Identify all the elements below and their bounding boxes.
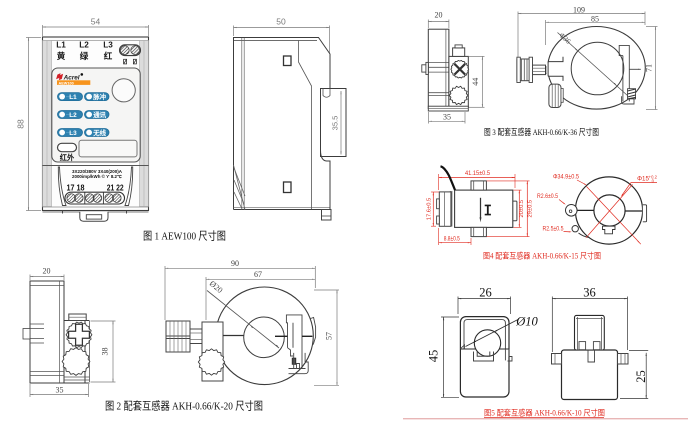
svg-text:图 3 配套互感器 AKH-0.66/K-36 尺寸图: 图 3 配套互感器 AKH-0.66/K-36 尺寸图 — [484, 126, 599, 137]
svg-text:85: 85 — [591, 14, 599, 23]
svg-text:绿: 绿 — [80, 51, 89, 61]
svg-text:35: 35 — [56, 386, 64, 395]
svg-text:无线: 无线 — [92, 128, 106, 137]
svg-text:脉冲: 脉冲 — [92, 92, 106, 101]
svg-text:Φ34.9±0.5: Φ34.9±0.5 — [553, 173, 579, 180]
svg-text:图4 配套互感器 AKH-0.66/K-15 尺寸图: 图4 配套互感器 AKH-0.66/K-15 尺寸图 — [483, 251, 601, 261]
svg-text:17 18: 17 18 — [67, 184, 85, 193]
svg-text:红外: 红外 — [60, 153, 75, 162]
svg-text:黄: 黄 — [57, 51, 66, 61]
svg-text:L1: L1 — [69, 94, 77, 101]
svg-text:21 22: 21 22 — [107, 184, 124, 193]
svg-text:L3: L3 — [103, 41, 113, 50]
svg-text:L3: L3 — [69, 130, 77, 137]
svg-text:红: 红 — [104, 51, 113, 61]
svg-text:20: 20 — [43, 267, 51, 276]
svg-text:17.6±0.5: 17.6±0.5 — [426, 198, 432, 221]
svg-text:2000imp/kWh © Ƴ 8.2℃: 2000imp/kWh © Ƴ 8.2℃ — [72, 174, 122, 179]
svg-text:36: 36 — [583, 286, 596, 300]
svg-text:29±0.5: 29±0.5 — [527, 200, 533, 218]
svg-text:109: 109 — [573, 6, 585, 15]
svg-text:35: 35 — [443, 112, 451, 121]
svg-text:38: 38 — [101, 348, 110, 356]
svg-text:图5 配套互感器 AKH-0.66/K-10 尺寸图: 图5 配套互感器 AKH-0.66/K-10 尺寸图 — [484, 408, 605, 418]
svg-text:25: 25 — [634, 370, 648, 383]
svg-text:通讯: 通讯 — [93, 110, 106, 119]
svg-text:50: 50 — [276, 17, 286, 27]
svg-text:图 2 配套互感器 AKH-0.66/K-20 尺寸图: 图 2 配套互感器 AKH-0.66/K-20 尺寸图 — [105, 399, 263, 413]
svg-text:20±0.5: 20±0.5 — [519, 200, 525, 218]
svg-text:54: 54 — [91, 17, 101, 27]
svg-text:Φ15: Φ15 — [637, 175, 649, 182]
svg-text:图 1 AEW100 尺寸图: 图 1 AEW100 尺寸图 — [143, 229, 226, 243]
svg-text:88: 88 — [16, 119, 26, 129]
svg-text:67: 67 — [254, 270, 262, 279]
svg-text:90: 90 — [231, 259, 239, 268]
svg-text:L2: L2 — [79, 41, 89, 50]
svg-text:R2.6±0.5: R2.6±0.5 — [537, 193, 558, 200]
svg-text:L2: L2 — [69, 112, 77, 119]
svg-text:26: 26 — [479, 286, 492, 300]
svg-text:44: 44 — [471, 78, 480, 86]
svg-text:57: 57 — [325, 332, 334, 340]
svg-text:R2.5±0.5: R2.5±0.5 — [543, 226, 564, 233]
svg-text:8.8±0.5: 8.8±0.5 — [444, 236, 461, 242]
svg-text:AEW100: AEW100 — [59, 81, 74, 85]
svg-text:Ø10: Ø10 — [515, 315, 538, 329]
svg-text:41.15±0.5: 41.15±0.5 — [465, 170, 491, 177]
svg-text:20: 20 — [435, 11, 443, 20]
svg-text:45: 45 — [426, 350, 440, 363]
svg-text:Acrel: Acrel — [63, 74, 80, 81]
svg-text:L1: L1 — [56, 41, 66, 50]
svg-text:35.5: 35.5 — [331, 116, 340, 131]
